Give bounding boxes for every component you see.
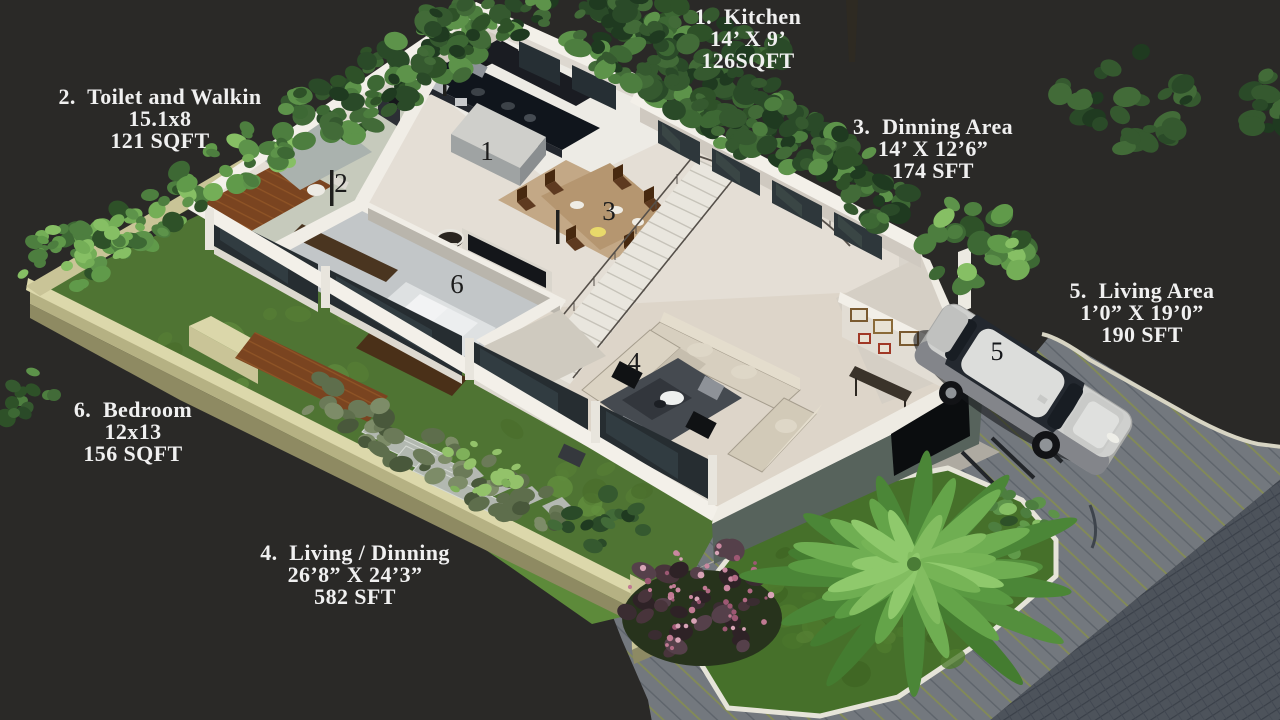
svg-text:1. Kitchen14’ X 9’126SQFT: 1. Kitchen14’ X 9’126SQFT — [695, 4, 801, 73]
svg-text:1: 1 — [480, 136, 494, 166]
svg-text:2: 2 — [334, 168, 348, 198]
svg-text:6: 6 — [450, 269, 464, 299]
svg-text:5: 5 — [991, 337, 1004, 366]
svg-text:3: 3 — [602, 196, 616, 226]
svg-text:4: 4 — [627, 347, 641, 377]
